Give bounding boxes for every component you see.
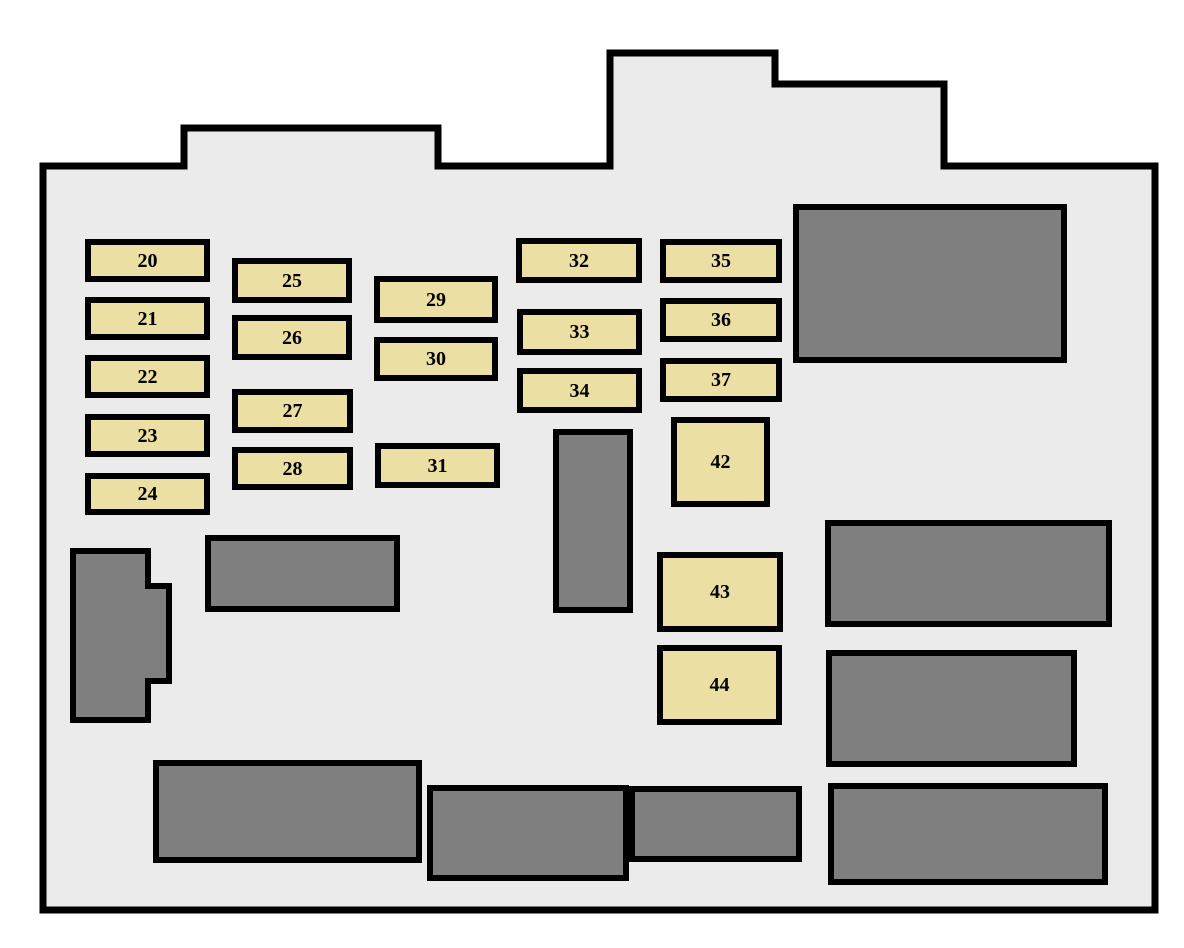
- fuse-box-29: 29: [374, 276, 498, 323]
- fuse-label: 23: [138, 426, 158, 446]
- fuse-label: 42: [711, 452, 731, 472]
- fuse-label: 35: [711, 251, 731, 271]
- fuse-box-42: 42: [671, 417, 770, 507]
- fuse-box-44: 44: [657, 645, 782, 725]
- fuse-box-23: 23: [85, 414, 210, 457]
- fuse-box-24: 24: [85, 473, 210, 515]
- fuse-box-31: 31: [375, 443, 500, 488]
- fuse-box-35: 35: [660, 239, 782, 283]
- fuse-label: 29: [426, 290, 446, 310]
- fuse-box-26: 26: [232, 315, 352, 360]
- fuse-box-37: 37: [660, 358, 782, 402]
- fuse-label: 44: [710, 675, 730, 695]
- fuse-box-30: 30: [374, 337, 498, 381]
- fuse-box-33: 33: [517, 309, 642, 355]
- fuse-box-diagram: 2021222324252627282930313233343536374243…: [0, 0, 1184, 948]
- fuse-label: 36: [711, 310, 731, 330]
- fuse-label: 22: [138, 367, 158, 387]
- fuse-label: 31: [428, 456, 448, 476]
- fuse-label: 27: [283, 401, 303, 421]
- fuse-label: 32: [569, 251, 589, 271]
- fuse-box-21: 21: [85, 297, 210, 340]
- fuse-label: 21: [138, 309, 158, 329]
- fuse-label: 37: [711, 370, 731, 390]
- fuse-label: 26: [282, 328, 302, 348]
- fuse-box-36: 36: [660, 298, 782, 342]
- fuse-box-22: 22: [85, 355, 210, 398]
- fuse-box-27: 27: [232, 389, 353, 433]
- fuse-layer: 2021222324252627282930313233343536374243…: [0, 0, 1184, 948]
- fuse-label: 28: [283, 459, 303, 479]
- fuse-box-25: 25: [232, 258, 352, 303]
- fuse-label: 25: [282, 271, 302, 291]
- fuse-box-43: 43: [657, 552, 783, 632]
- fuse-label: 33: [570, 322, 590, 342]
- fuse-label: 43: [710, 582, 730, 602]
- fuse-box-20: 20: [85, 239, 210, 282]
- fuse-label: 34: [570, 381, 590, 401]
- fuse-box-32: 32: [516, 238, 642, 283]
- fuse-box-28: 28: [232, 447, 353, 490]
- fuse-label: 20: [138, 251, 158, 271]
- fuse-label: 30: [426, 349, 446, 369]
- fuse-box-34: 34: [517, 368, 642, 413]
- fuse-label: 24: [138, 484, 158, 504]
